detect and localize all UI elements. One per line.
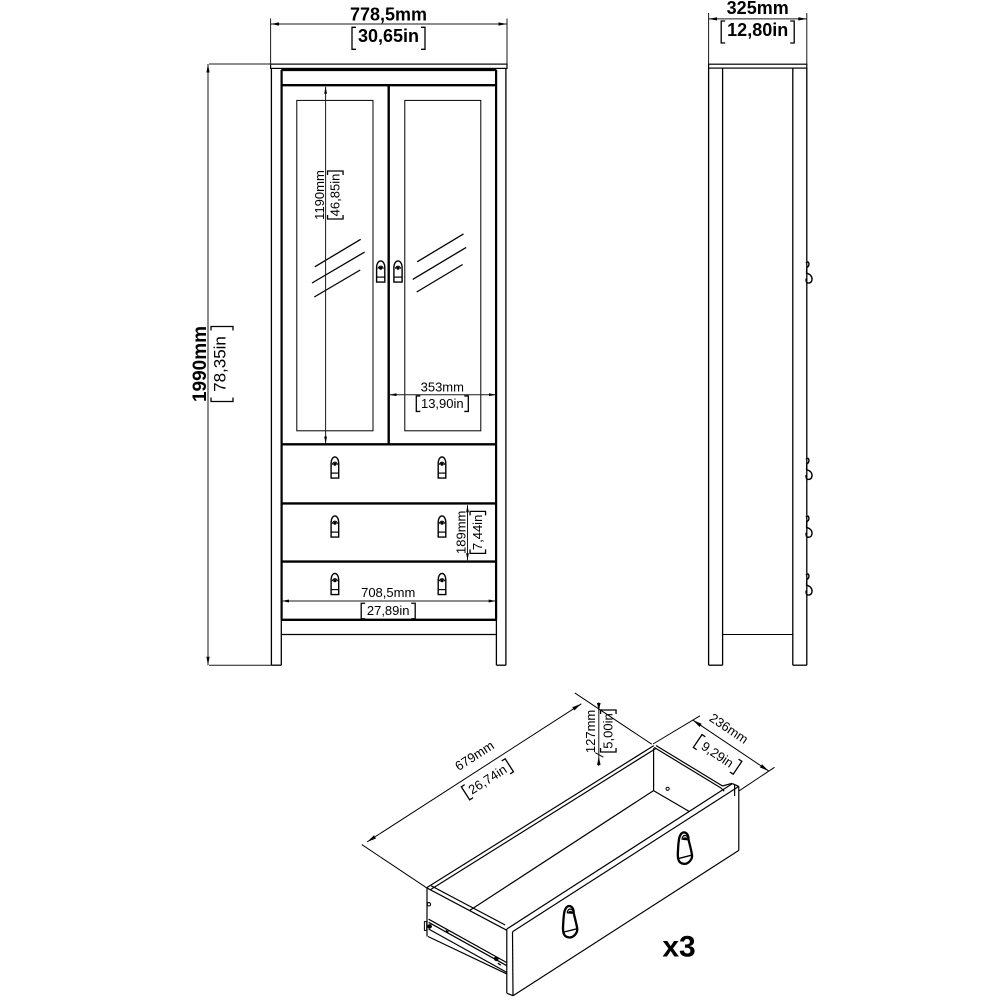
svg-text:1190mm: 1190mm <box>312 170 327 220</box>
svg-text:1990mm: 1990mm <box>190 326 211 402</box>
svg-text:5,00in: 5,00in <box>600 713 615 748</box>
svg-text:46,85in: 46,85in <box>327 174 342 217</box>
svg-text:325mm: 325mm <box>727 0 789 18</box>
svg-text:x3: x3 <box>662 931 695 964</box>
svg-text:7,44in: 7,44in <box>470 515 485 550</box>
svg-text:189mm: 189mm <box>454 511 469 554</box>
svg-text:13,90in: 13,90in <box>421 396 464 411</box>
svg-text:78,35in: 78,35in <box>211 336 230 392</box>
svg-text:27,89in: 27,89in <box>367 603 410 618</box>
svg-text:127mm: 127mm <box>583 710 598 753</box>
svg-text:353mm: 353mm <box>421 380 464 395</box>
svg-text:30,65in: 30,65in <box>358 26 419 46</box>
svg-text:778,5mm: 778,5mm <box>350 5 427 25</box>
svg-text:12,80in: 12,80in <box>727 20 788 40</box>
svg-text:708,5mm: 708,5mm <box>361 585 415 600</box>
